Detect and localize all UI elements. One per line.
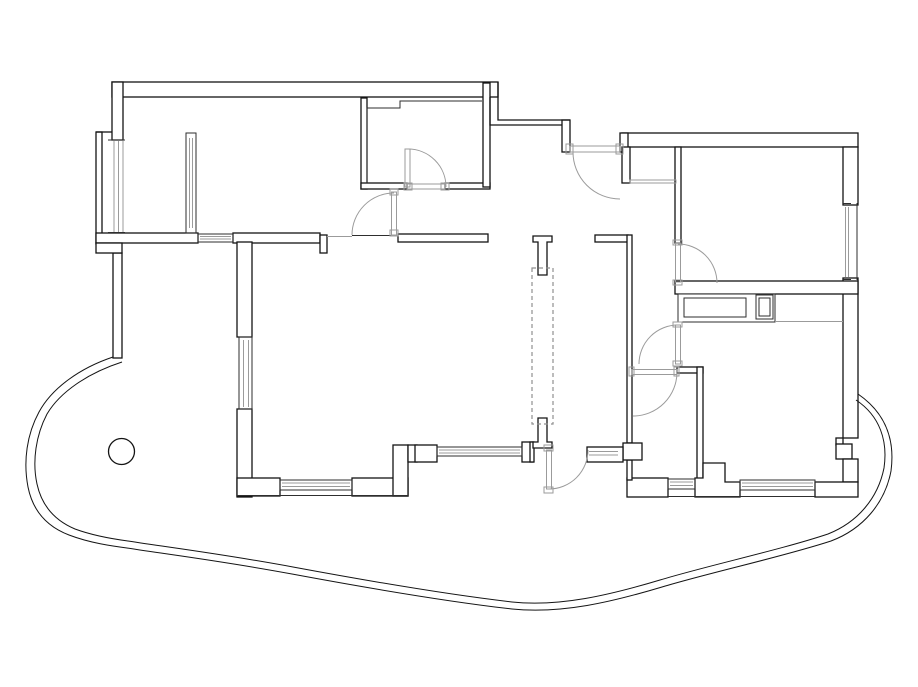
door-corridor-swing-arc xyxy=(352,193,394,235)
door-bedroom-right-leaf xyxy=(676,243,681,282)
right-wall-mid xyxy=(843,278,858,438)
bath-right-wall xyxy=(697,367,703,480)
left-step2 xyxy=(96,243,122,253)
hall-left-wall xyxy=(483,83,490,187)
left-wall-lower xyxy=(113,253,122,358)
floor-plan-canvas xyxy=(0,0,918,687)
door-closet-leaf xyxy=(405,149,410,187)
window-bedroom1-bottom xyxy=(198,234,233,242)
hall-column-wall xyxy=(627,460,632,480)
elevator-shaft xyxy=(532,268,553,424)
right-square-column xyxy=(836,444,852,459)
right-wall-upper xyxy=(843,147,858,205)
right-wall-lower xyxy=(843,459,858,482)
balcony-parapet-outer xyxy=(26,357,892,610)
left-wall-upper xyxy=(112,82,123,140)
bedroom2-left-wall xyxy=(675,147,681,243)
square-column-623 xyxy=(623,443,642,460)
bedroom2-bottom-wall xyxy=(675,281,858,294)
window-kitchen-bottom xyxy=(740,480,815,490)
bottom-wall-loggia xyxy=(96,233,198,243)
entrance-step-inner xyxy=(490,97,562,125)
wall-hall-top-right xyxy=(595,235,628,242)
door-entrance-swing-arc xyxy=(573,152,620,199)
window-living-left xyxy=(239,337,252,409)
window-living-bottom xyxy=(280,480,352,490)
mid-square-column xyxy=(415,445,437,462)
t-column-bottom xyxy=(533,418,552,448)
closet-left-wall xyxy=(361,98,367,189)
hall-right-wall xyxy=(627,235,632,443)
top-wall-right xyxy=(622,133,858,147)
entrance-step-outer xyxy=(498,82,570,120)
closet-room-outline xyxy=(367,101,482,183)
top-wall-left xyxy=(112,82,498,97)
round-column xyxy=(109,439,135,465)
step-column xyxy=(393,445,408,496)
left-outer-step xyxy=(96,132,102,244)
living-bottom-left xyxy=(237,478,280,496)
door-closet-swing-arc xyxy=(408,149,446,187)
door-kitchen-swing-arc xyxy=(639,325,678,364)
window-hall-bottom xyxy=(437,447,522,456)
bath-bottom-wall xyxy=(627,478,668,497)
door-bedroom-right-swing-arc xyxy=(678,244,717,283)
vestibule-threshold xyxy=(630,180,676,183)
floor-plan-drawing xyxy=(0,0,918,687)
door-bathroom-leaf xyxy=(632,370,677,375)
t-column-top xyxy=(533,236,552,275)
bottom-wall-right xyxy=(815,482,858,497)
door-bathroom-swing-arc xyxy=(633,372,677,416)
window-bath-bottom xyxy=(668,479,695,489)
door-balcony-leaf xyxy=(547,450,552,489)
living-left-wall-upper xyxy=(237,242,252,337)
door-corridor-leaf xyxy=(392,192,397,235)
door-kitchen-leaf xyxy=(676,325,681,364)
wall-top-living xyxy=(398,234,488,242)
door-entrance-leaf xyxy=(570,146,620,152)
closet-bottom-left xyxy=(361,183,407,189)
floor-plan-svg xyxy=(0,0,918,687)
window-loggia-inner xyxy=(186,133,196,233)
door-closet-threshold xyxy=(407,184,445,189)
door-balcony-swing-arc xyxy=(549,450,588,489)
stub-bedroom1 xyxy=(320,235,327,253)
